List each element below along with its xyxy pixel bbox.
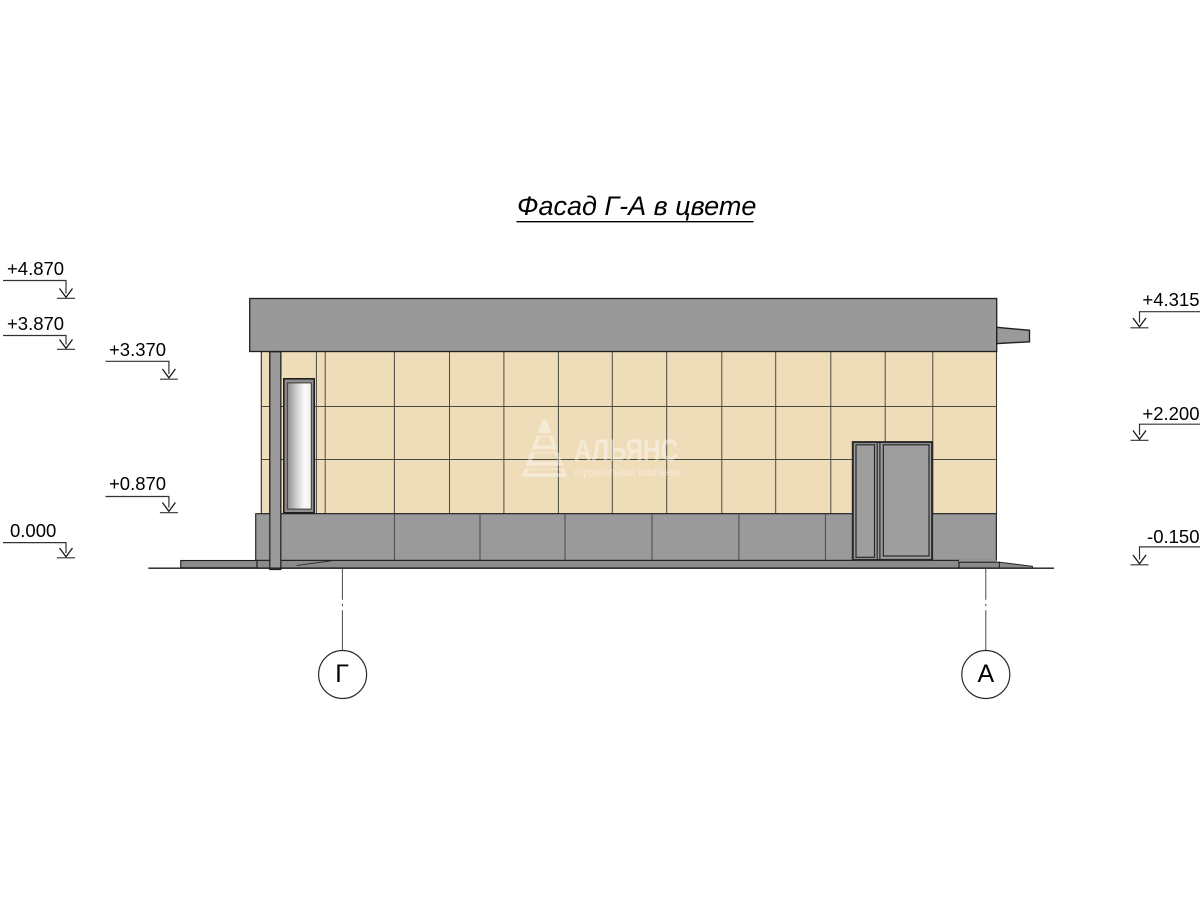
svg-text:АЛЬЯНС: АЛЬЯНС <box>574 433 678 468</box>
svg-text:строительная компания: строительная компания <box>574 465 681 479</box>
